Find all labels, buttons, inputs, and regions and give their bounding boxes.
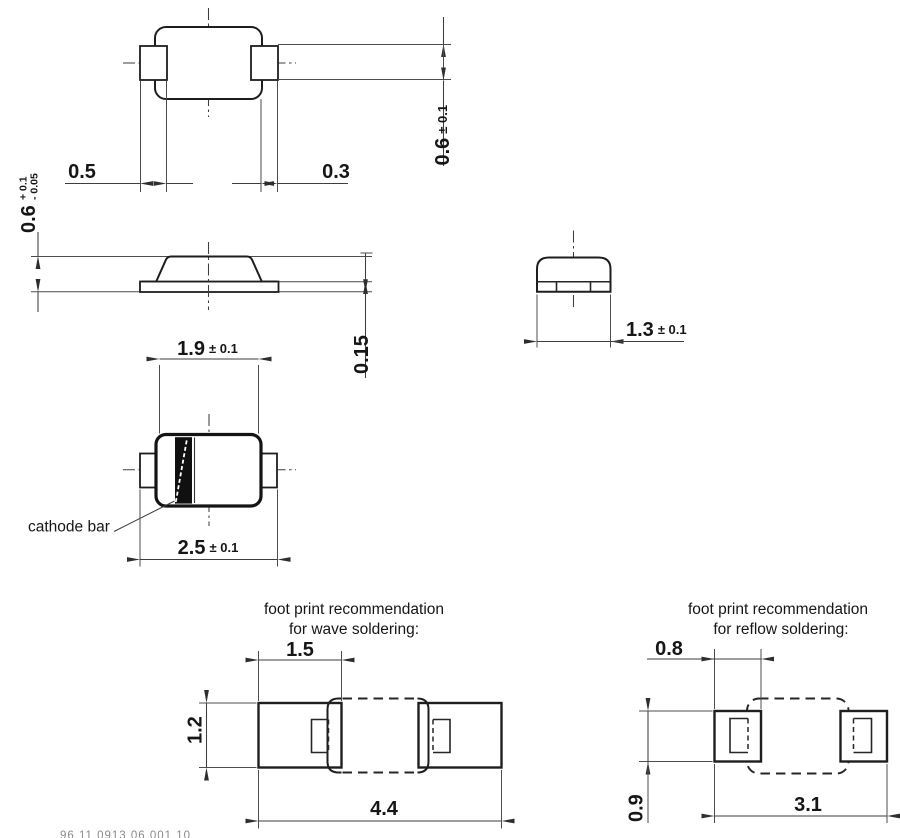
- extension-lines: [639, 711, 713, 762]
- lead-frame: [140, 282, 279, 293]
- dim-body-width: 1.3± 0.1: [626, 319, 687, 341]
- dim-total-length: 2.5± 0.1: [178, 537, 239, 559]
- dim-wave-overall-length: 4.4: [370, 798, 399, 820]
- dim-tab-overhang: 0.3: [322, 161, 350, 183]
- svg-text:1.2: 1.2: [185, 716, 207, 744]
- dim-lead-thickness: 0.15: [351, 335, 373, 374]
- right-terminal-tab: [261, 454, 277, 488]
- package-outline-drawing: 0.5 0.3 0.6± 0.1 0.6 + 0.1 - 0.05 0.: [0, 0, 900, 838]
- svg-text:- 0.05: - 0.05: [29, 173, 41, 200]
- component-body-top: [155, 27, 262, 99]
- right-solder-pad: [419, 703, 502, 768]
- dim-wave-pad-width: 1.5: [286, 639, 314, 661]
- dim-reflow-pad-height: 0.9: [626, 794, 648, 822]
- left-terminal-tab: [140, 46, 167, 80]
- end-view: 1.3± 0.1: [537, 231, 687, 348]
- dim-reflow-pad-width: 0.8: [655, 638, 683, 660]
- right-terminal-tab: [251, 46, 278, 80]
- technical-drawing-svg: 0.5 0.3 0.6± 0.1 0.6 + 0.1 - 0.05 0.: [0, 0, 900, 838]
- dim-tab-length: 0.5: [68, 161, 96, 183]
- leader-line: [114, 501, 175, 532]
- extension-lines: [199, 703, 257, 768]
- left-terminal-tab: [140, 454, 156, 488]
- left-solder-pad: [259, 703, 342, 768]
- reflow-title-line1: foot print recommendation: [688, 601, 868, 618]
- dim-reflow-overall-length: 3.1: [794, 794, 822, 816]
- component-body-end: [537, 258, 611, 292]
- bottom-view: 1.9± 0.1 cathode bar 2.5± 0.1: [28, 338, 296, 567]
- extension-lines: [278, 45, 451, 80]
- component-outline-dashed: [747, 699, 849, 774]
- footer-doc-code: 96 11 0913 06 001 10: [60, 830, 191, 838]
- svg-text:0.9: 0.9: [626, 794, 648, 822]
- wave-title-line2: for wave soldering:: [289, 621, 419, 638]
- footprint-reflow: foot print recommendation for reflow sol…: [626, 601, 888, 823]
- cathode-bar-label: cathode bar: [28, 519, 110, 536]
- svg-text:0.15: 0.15: [351, 335, 373, 374]
- top-view: 0.5 0.3 0.6± 0.1: [65, 8, 454, 192]
- reflow-title-line2: for reflow soldering:: [713, 621, 848, 638]
- dim-wave-pad-height: 1.2: [185, 716, 207, 744]
- dim-body-length: 1.9± 0.1: [177, 338, 238, 360]
- footprint-wave: foot print recommendation for wave solde…: [185, 601, 502, 829]
- svg-text:0.6: 0.6: [18, 205, 40, 233]
- component-body-bottom: [156, 435, 261, 507]
- component-outline-dashed: [343, 699, 417, 773]
- dim-height: 0.6 + 0.1 - 0.05: [18, 173, 41, 233]
- wave-title-line1: foot print recommendation: [264, 601, 444, 618]
